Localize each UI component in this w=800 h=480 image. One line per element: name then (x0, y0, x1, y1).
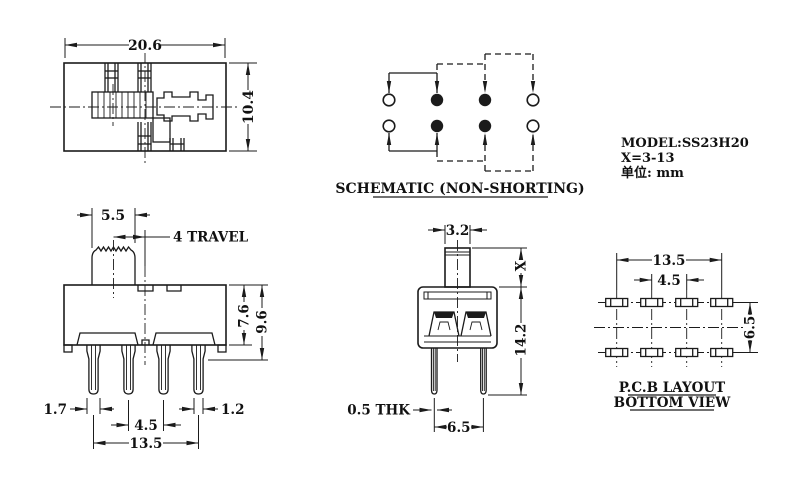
model-number: MODEL:SS23H20 (621, 136, 749, 151)
dim-pcb-outer-pitch: 13.5 (653, 253, 686, 269)
dim-knob-width: 5.5 (101, 208, 125, 224)
dim-pin-pitch: 6.5 (447, 420, 471, 436)
dim-pin-thickness: 0.5 THK (347, 403, 411, 419)
dim-stem-height: X (514, 260, 530, 271)
dim-travel: 4 TRAVEL (173, 230, 249, 246)
dim-inner-pitch: 4.5 (134, 418, 158, 434)
dim-stem-width: 3.2 (446, 223, 470, 239)
model-x-range: X=3-13 (621, 151, 675, 166)
schematic-title: SCHEMATIC (NON-SHORTING) (335, 181, 584, 197)
dim-pcb-inner-pitch: 4.5 (657, 273, 681, 289)
dim-total-height-side: 14.2 (514, 324, 530, 357)
dim-outer-pitch: 13.5 (130, 436, 163, 452)
model-unit: 单位: mm (621, 165, 684, 181)
drawing-page: 20.6 10.4 (0, 0, 800, 480)
dim-top-height: 10.4 (241, 90, 257, 124)
dim-total-height: 9.6 (255, 310, 271, 334)
dim-pin4-width: 1.2 (221, 402, 245, 418)
dim-body-height: 7.6 (237, 304, 253, 328)
technical-drawing: 20.6 10.4 (0, 0, 800, 480)
dim-pin1-width: 1.7 (44, 402, 68, 418)
dim-top-width: 20.6 (128, 38, 162, 54)
dim-pcb-row-pitch: 6.5 (743, 316, 759, 340)
pcb-subtitle: BOTTOM VIEW (614, 395, 732, 411)
pcb-title: P.C.B LAYOUT (619, 380, 725, 396)
